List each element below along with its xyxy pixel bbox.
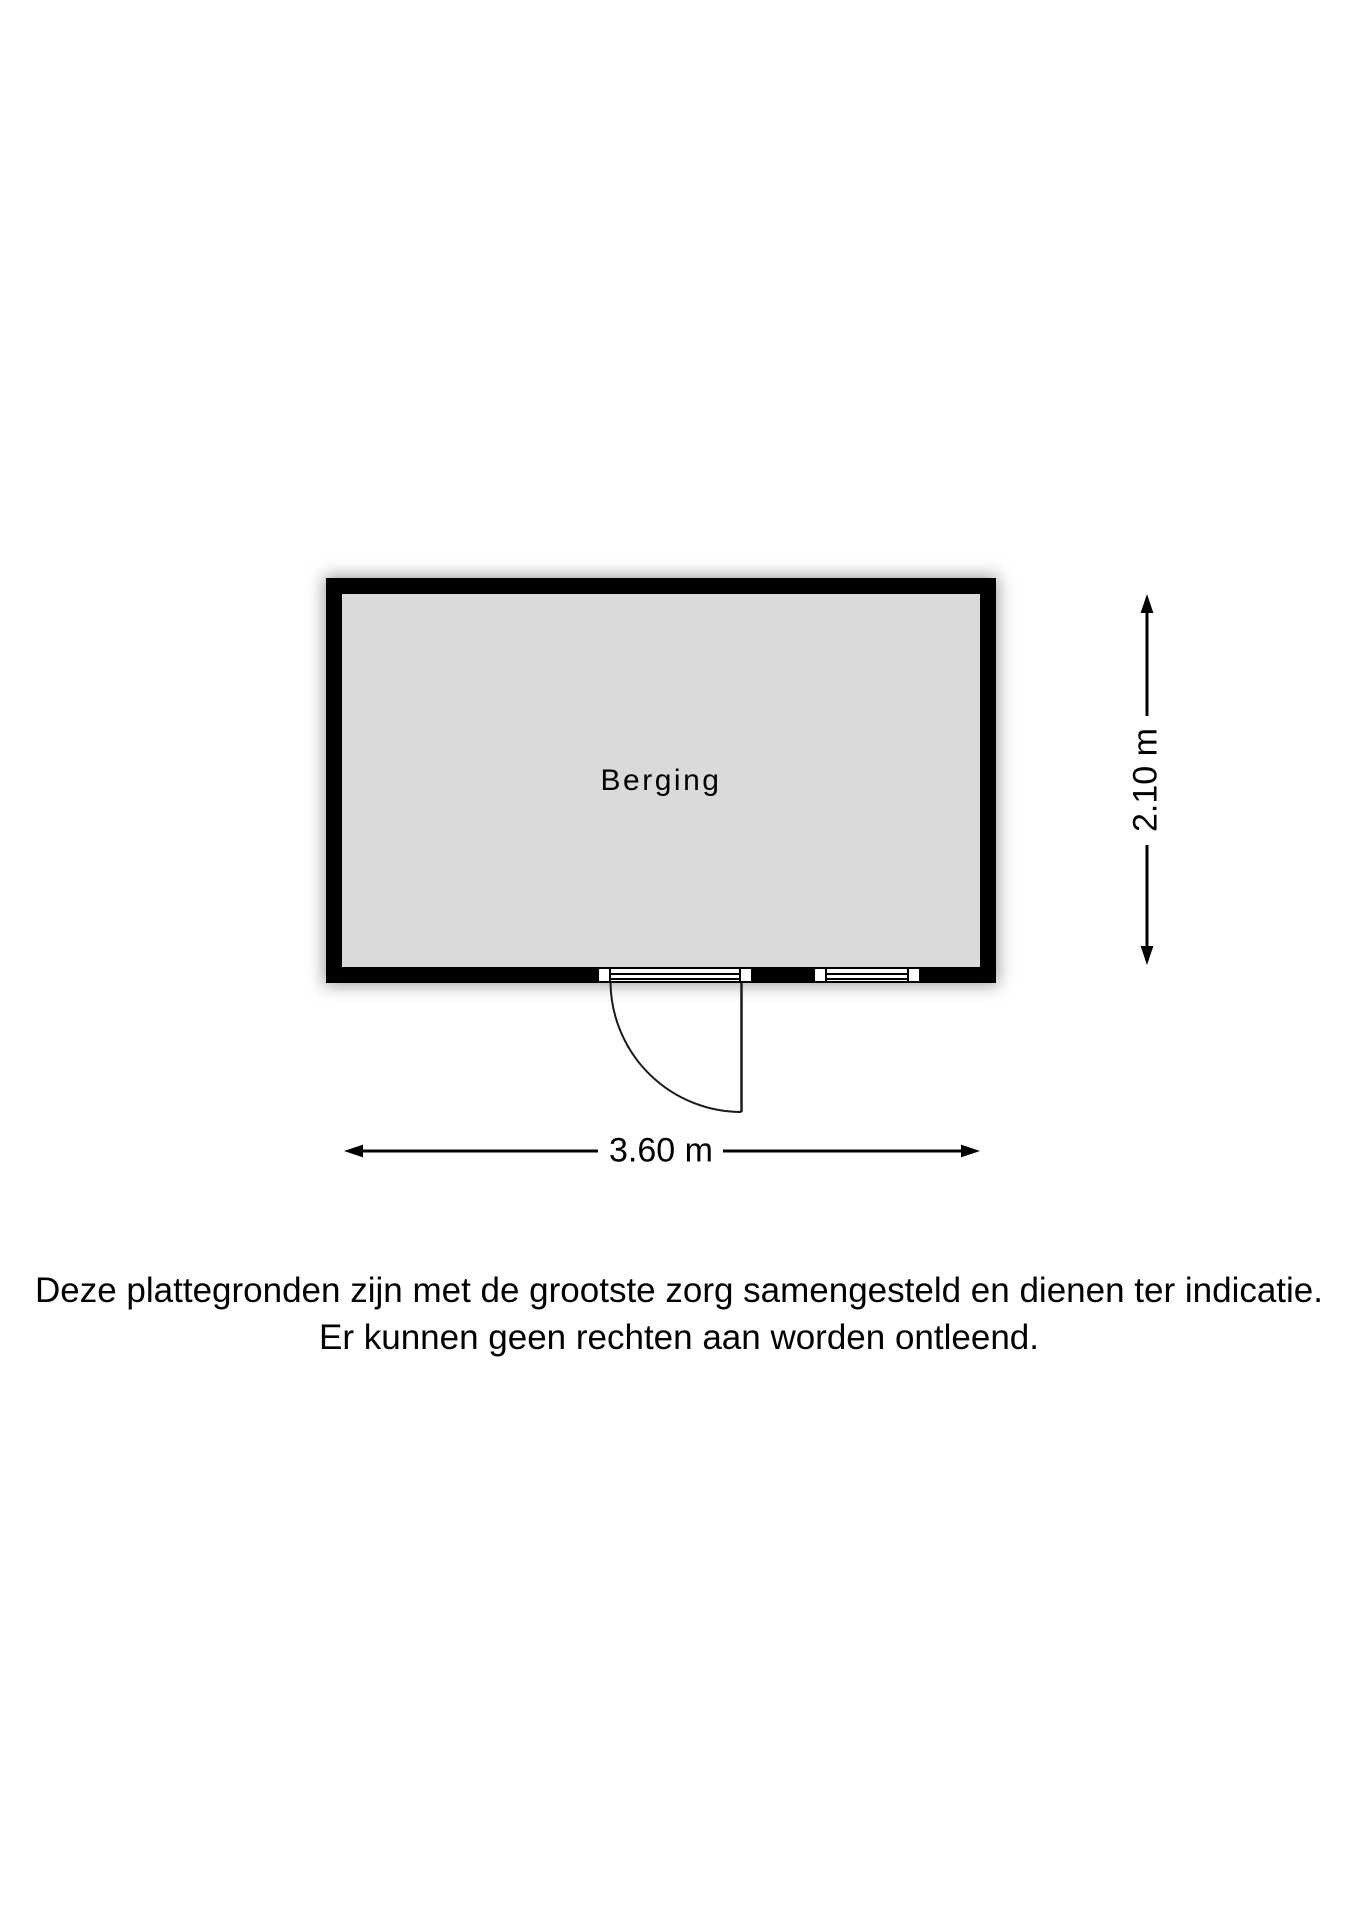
door-swing-arc [611, 983, 742, 1112]
disclaimer-line-1: Deze plattegronden zijn met de grootste … [0, 1267, 1358, 1314]
disclaimer: Deze plattegronden zijn met de grootste … [0, 1267, 1358, 1361]
width-dimension-arrow-right [961, 1145, 980, 1158]
height-dimension-label: 2.10 m [1127, 728, 1166, 832]
floorplan-page: Berging 3.60 m [0, 0, 1358, 1920]
disclaimer-line-2: Er kunnen geen rechten aan worden ontlee… [0, 1314, 1358, 1361]
height-dimension-arrow-down [1141, 946, 1154, 965]
plan-annotations [0, 0, 1358, 1920]
width-dimension-label: 3.60 m [609, 1132, 713, 1171]
height-dimension-arrow-up [1141, 594, 1154, 613]
width-dimension-arrow-left [344, 1145, 363, 1158]
